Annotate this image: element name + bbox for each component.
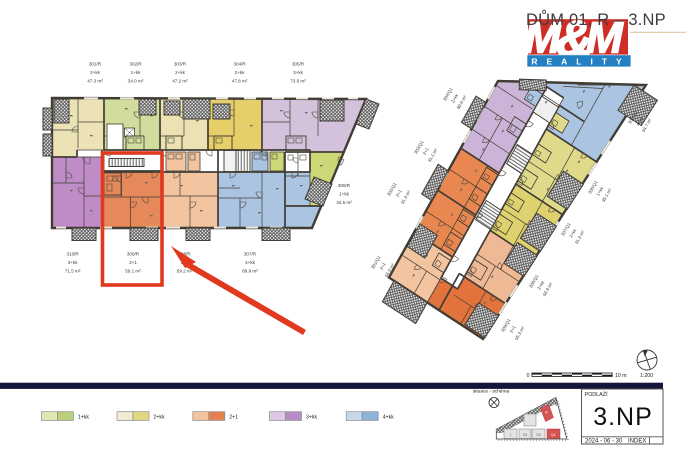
svg-text:10 m: 10 m (615, 373, 627, 379)
svg-text:PODLAŽÍ: PODLAŽÍ (585, 390, 609, 398)
svg-text:47.2 m²: 47.2 m² (172, 78, 188, 83)
svg-text:4+kk: 4+kk (383, 414, 395, 420)
svg-text:303/R: 303/R (174, 62, 187, 67)
svg-text:2024 - 06 - 30: 2024 - 06 - 30 (585, 438, 623, 444)
svg-text:1+kk: 1+kk (78, 414, 90, 420)
svg-text:309/R: 309/R (127, 252, 140, 257)
svg-text:302/R: 302/R (129, 62, 142, 67)
svg-text:2+kk: 2+kk (235, 70, 246, 75)
svg-text:3+kk: 3+kk (68, 260, 79, 265)
svg-text:71.5 m²: 71.5 m² (65, 268, 81, 273)
svg-text:89.8 m²: 89.8 m² (242, 268, 258, 273)
svg-text:3+kk: 3+kk (293, 70, 304, 75)
svg-text:47.8 m²: 47.8 m² (232, 78, 248, 83)
svg-text:47.3 m²: 47.3 m² (87, 78, 103, 83)
svg-text:2+1: 2+1 (129, 260, 137, 265)
svg-text:305/R: 305/R (292, 62, 305, 67)
svg-text:59.1 m²: 59.1 m² (125, 268, 141, 273)
svg-text:INDEX: INDEX (628, 438, 646, 444)
svg-text:310/R: 310/R (66, 252, 79, 257)
svg-text:3.NP: 3.NP (593, 403, 653, 431)
svg-text:0: 0 (527, 373, 530, 379)
svg-text:4+kk: 4+kk (245, 260, 256, 265)
svg-text:O2: O2 (536, 433, 541, 437)
svg-text:I: I (510, 433, 511, 437)
svg-text:1+kk: 1+kk (339, 191, 350, 196)
svg-text:2+kk: 2+kk (154, 414, 166, 420)
svg-text:situace - schéma: situace - schéma (473, 389, 510, 395)
svg-text:REALITY: REALITY (531, 57, 630, 67)
svg-text:3+kk: 3+kk (306, 414, 318, 420)
svg-text:2+kk: 2+kk (90, 70, 101, 75)
svg-text:Q1: Q1 (551, 433, 556, 437)
svg-text:34.0 m²: 34.0 m² (128, 78, 144, 83)
svg-text:73.6 m²: 73.6 m² (290, 78, 306, 83)
svg-text:301/R: 301/R (89, 62, 102, 67)
svg-text:307/R: 307/R (244, 252, 257, 257)
svg-text:304/R: 304/R (233, 62, 246, 67)
svg-text:2+kk: 2+kk (175, 70, 186, 75)
svg-text:1:200: 1:200 (640, 373, 653, 379)
svg-text:2+1: 2+1 (229, 414, 238, 420)
svg-text:34.5 m²: 34.5 m² (336, 200, 352, 205)
svg-text:DŮM 01, R – 3.NP: DŮM 01, R – 3.NP (526, 10, 666, 29)
svg-text:O1: O1 (523, 433, 528, 437)
svg-text:1+kk: 1+kk (131, 70, 142, 75)
svg-text:R: R (545, 411, 548, 415)
svg-text:306/R: 306/R (338, 183, 351, 188)
